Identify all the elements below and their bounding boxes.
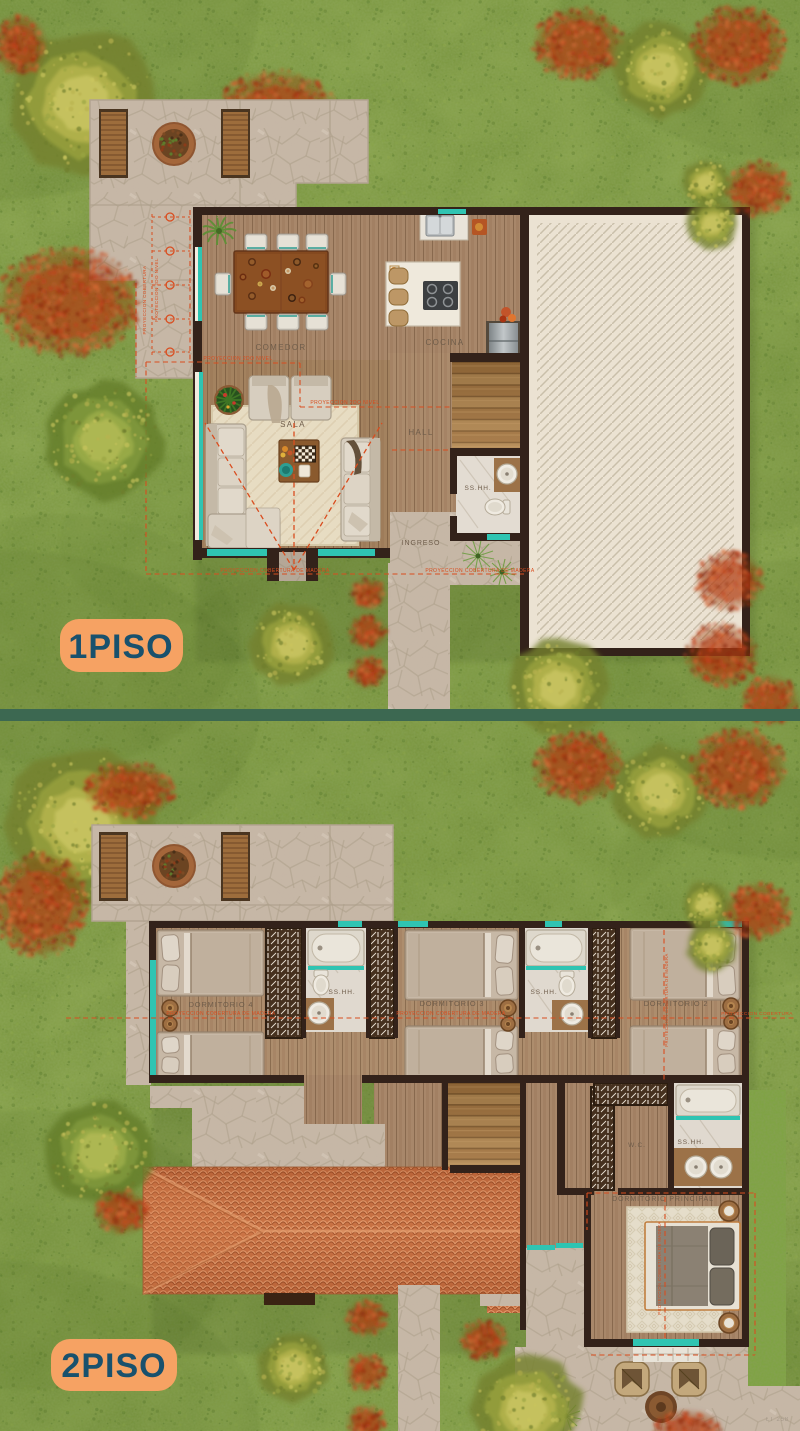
svg-text:PROYECCION 2DO NIVEL: PROYECCION 2DO NIVEL	[310, 400, 379, 406]
svg-text:PROYECCION COBERTURA: PROYECCION COBERTURA	[721, 1011, 793, 1017]
svg-text:COMEDOR: COMEDOR	[256, 343, 307, 352]
svg-text:PROTECCION 2DO NIVEL: PROTECCION 2DO NIVEL	[154, 258, 159, 322]
svg-text:DORMITORIO 2: DORMITORIO 2	[644, 999, 709, 1008]
svg-text:PROYECCION COBERTURA DE MADERA: PROYECCION COBERTURA DE MADERA	[396, 1011, 505, 1017]
svg-text:PROYECCION COBERTURA: PROYECCION COBERTURA	[142, 265, 147, 334]
svg-text:PROYECCION 2DO NIVEL: PROYECCION 2DO NIVEL	[203, 356, 272, 362]
svg-text:SALA: SALA	[280, 420, 306, 429]
svg-text:DORMITORIO 3: DORMITORIO 3	[420, 999, 485, 1008]
svg-text:SS.HH.: SS.HH.	[328, 989, 355, 996]
svg-text:SS.HH.: SS.HH.	[677, 1139, 704, 1146]
svg-text:COCINA: COCINA	[426, 338, 465, 347]
svg-text:SS.HH.: SS.HH.	[464, 485, 491, 492]
svg-text:LT 258: LT 258	[766, 1417, 789, 1423]
svg-text:W.C.: W.C.	[628, 1142, 646, 1149]
svg-text:PROYECCION COBERTURA DE MADERA: PROYECCION COBERTURA DE MADERA	[220, 568, 329, 574]
svg-text:HALL: HALL	[408, 428, 433, 437]
svg-text:PROYECCION COBERTURA DE MADERA: PROYECCION COBERTURA DE MADERA	[425, 568, 534, 574]
svg-text:PROYECCION COBERTURA DE MADERA: PROYECCION COBERTURA DE MADERA	[657, 1221, 662, 1314]
svg-text:1PISO: 1PISO	[68, 628, 173, 666]
svg-text:DORMITORIO 4: DORMITORIO 4	[189, 1000, 254, 1009]
svg-text:INGRESO: INGRESO	[402, 540, 441, 547]
svg-text:PROYECCION COBERTURA DE MADERA: PROYECCION COBERTURA DE MADERA	[166, 1011, 275, 1017]
svg-text:SS.HH.: SS.HH.	[530, 989, 557, 996]
svg-text:PROYECCION COBERTURA DE MADERA: PROYECCION COBERTURA DE MADERA	[664, 953, 669, 1046]
svg-text:DORMITORIO PRINCIPAL: DORMITORIO PRINCIPAL	[612, 1196, 714, 1203]
